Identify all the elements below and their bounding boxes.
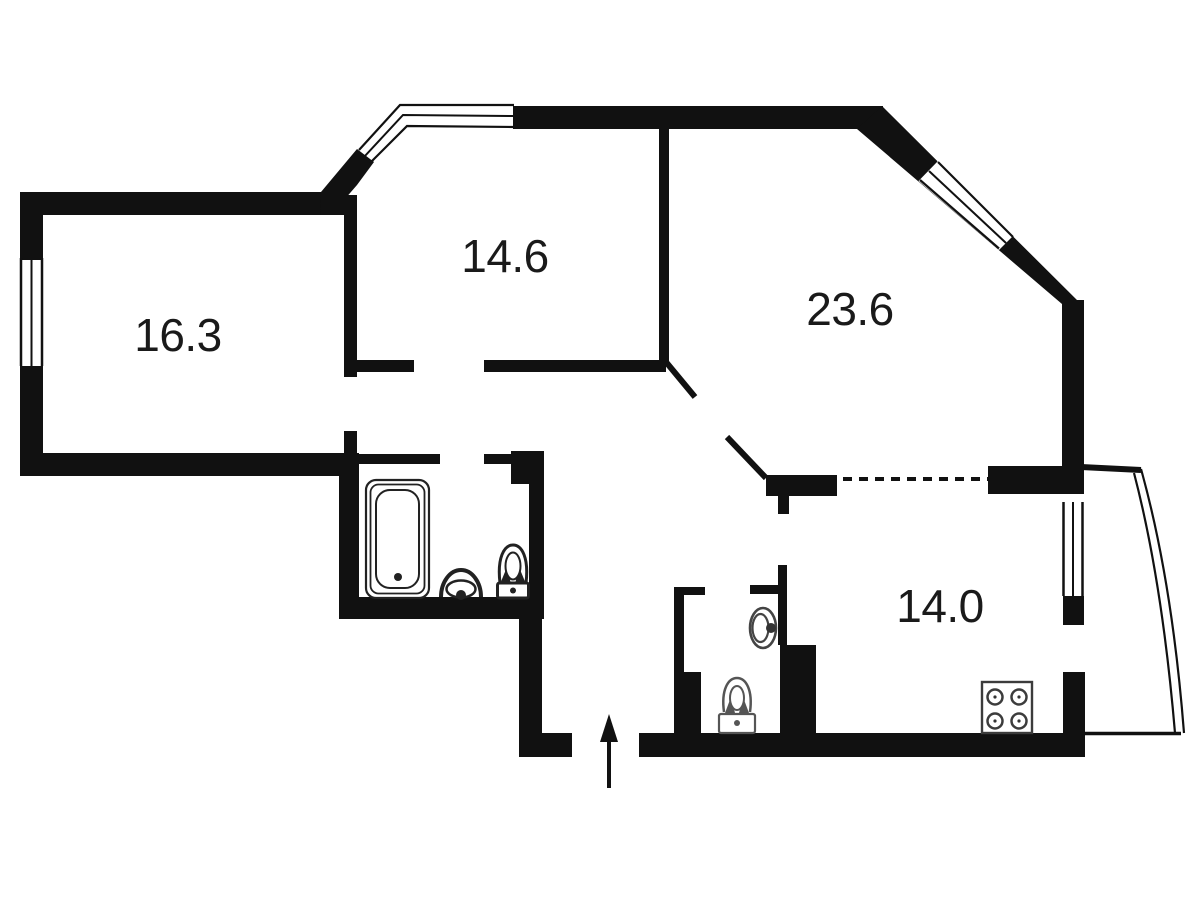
svg-text:14.6: 14.6 (461, 230, 549, 282)
svg-text:23.6: 23.6 (806, 283, 894, 335)
svg-text:16.3: 16.3 (134, 309, 222, 361)
svg-text:14.0: 14.0 (896, 580, 984, 632)
